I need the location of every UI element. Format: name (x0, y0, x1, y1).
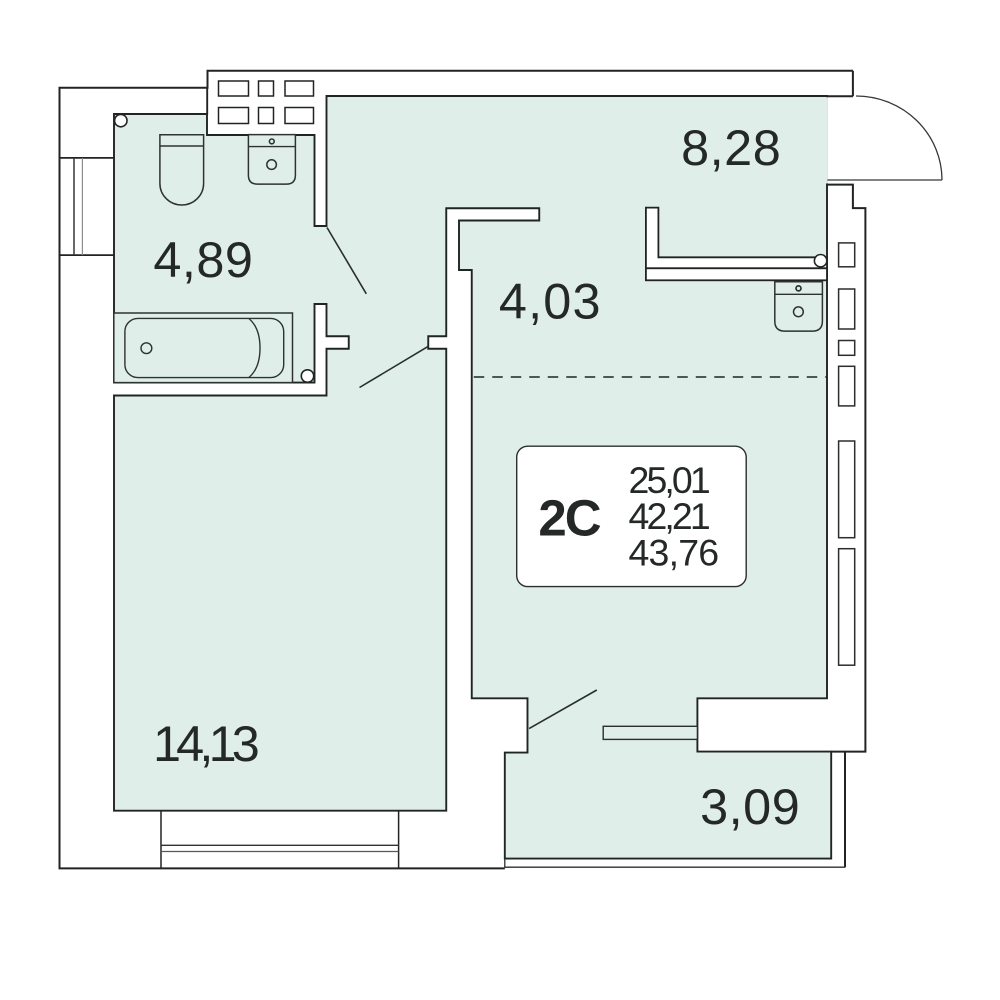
svg-text:3,09: 3,09 (700, 778, 800, 835)
svg-text:2C: 2C (538, 489, 600, 546)
svg-text:14,13: 14,13 (153, 715, 258, 772)
svg-text:43,76: 43,76 (629, 531, 719, 573)
svg-text:4,03: 4,03 (499, 272, 602, 329)
svg-text:4,89: 4,89 (153, 231, 253, 288)
svg-text:8,28: 8,28 (681, 119, 781, 176)
